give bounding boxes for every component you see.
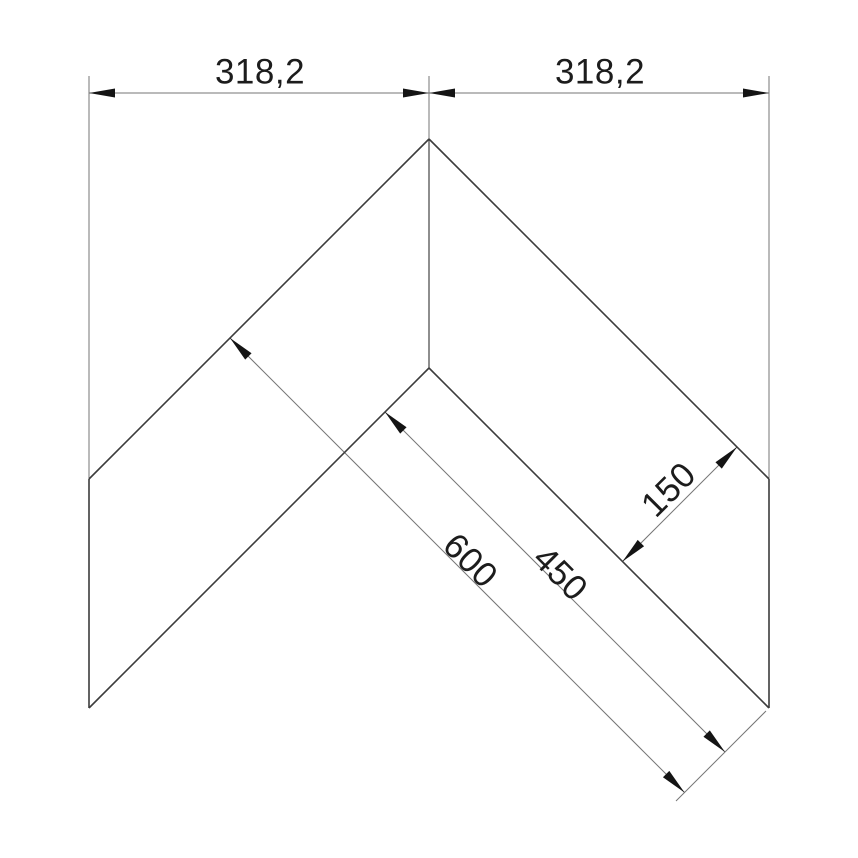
dim-label-318-right: 318,2 bbox=[555, 53, 645, 92]
technical-drawing-canvas: 318,2318,2600450150 bbox=[0, 0, 858, 858]
drawing-page: 318,2318,2600450150 bbox=[0, 0, 858, 858]
extension-line-end-plane bbox=[676, 711, 766, 801]
dim-label-600: 600 bbox=[435, 526, 505, 596]
dim-label-450: 450 bbox=[525, 539, 595, 609]
outer-right-edge bbox=[429, 139, 769, 479]
arrow-318-right-inner bbox=[429, 89, 455, 98]
arrow-450-end bbox=[703, 730, 728, 755]
arrow-450-start bbox=[382, 409, 407, 434]
arrow-318-left-outer bbox=[89, 89, 115, 98]
arrow-318-left-inner bbox=[403, 89, 429, 98]
arrow-150-upper bbox=[715, 444, 740, 469]
arrow-318-right-outer bbox=[743, 89, 769, 98]
outer-left-edge bbox=[89, 139, 429, 479]
arrow-150-lower bbox=[619, 540, 644, 565]
dim-label-150: 150 bbox=[634, 455, 704, 525]
dim-label-318-left: 318,2 bbox=[215, 53, 305, 92]
inner-right-edge bbox=[429, 368, 769, 708]
arrow-600-end bbox=[663, 771, 688, 796]
inner-left-edge bbox=[89, 368, 429, 708]
arrow-600-start bbox=[227, 335, 252, 360]
